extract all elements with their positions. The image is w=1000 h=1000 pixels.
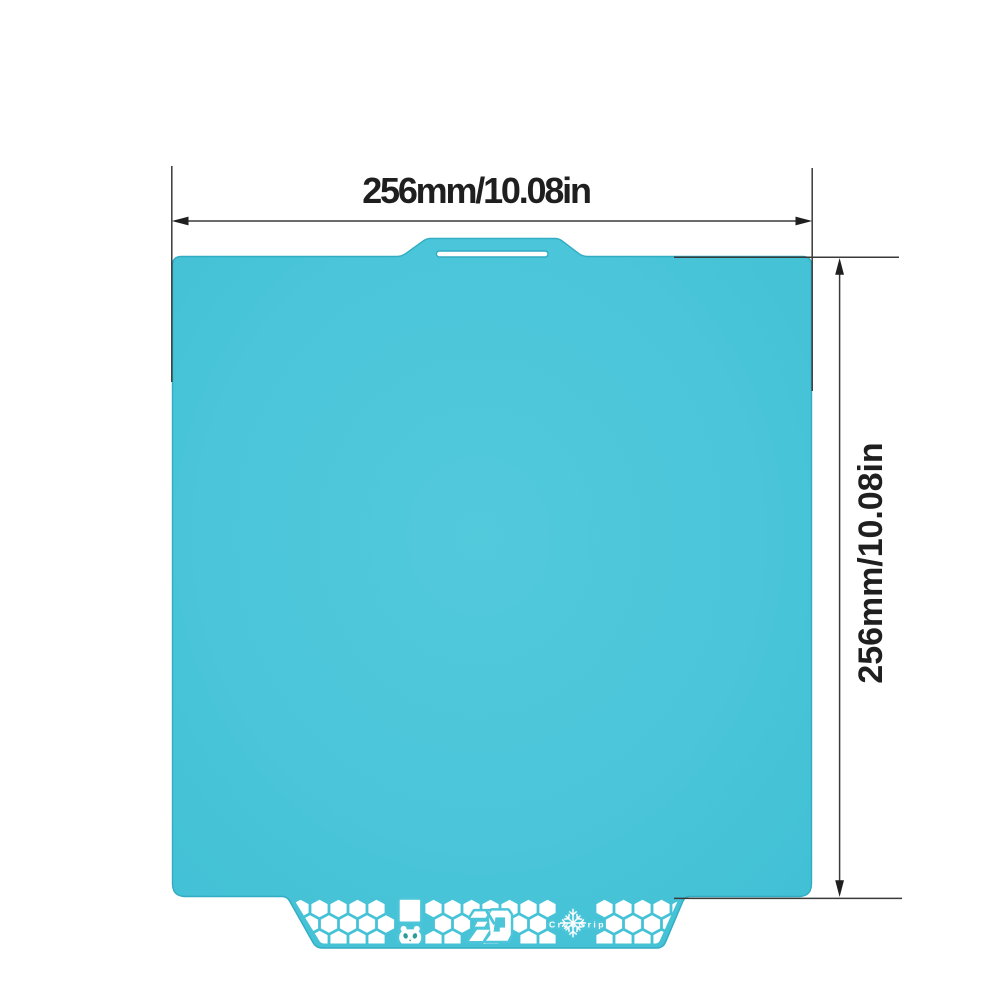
svg-text:256mm/10.08in: 256mm/10.08in: [362, 170, 590, 211]
svg-text:256mm/10.08in: 256mm/10.08in: [852, 442, 890, 683]
